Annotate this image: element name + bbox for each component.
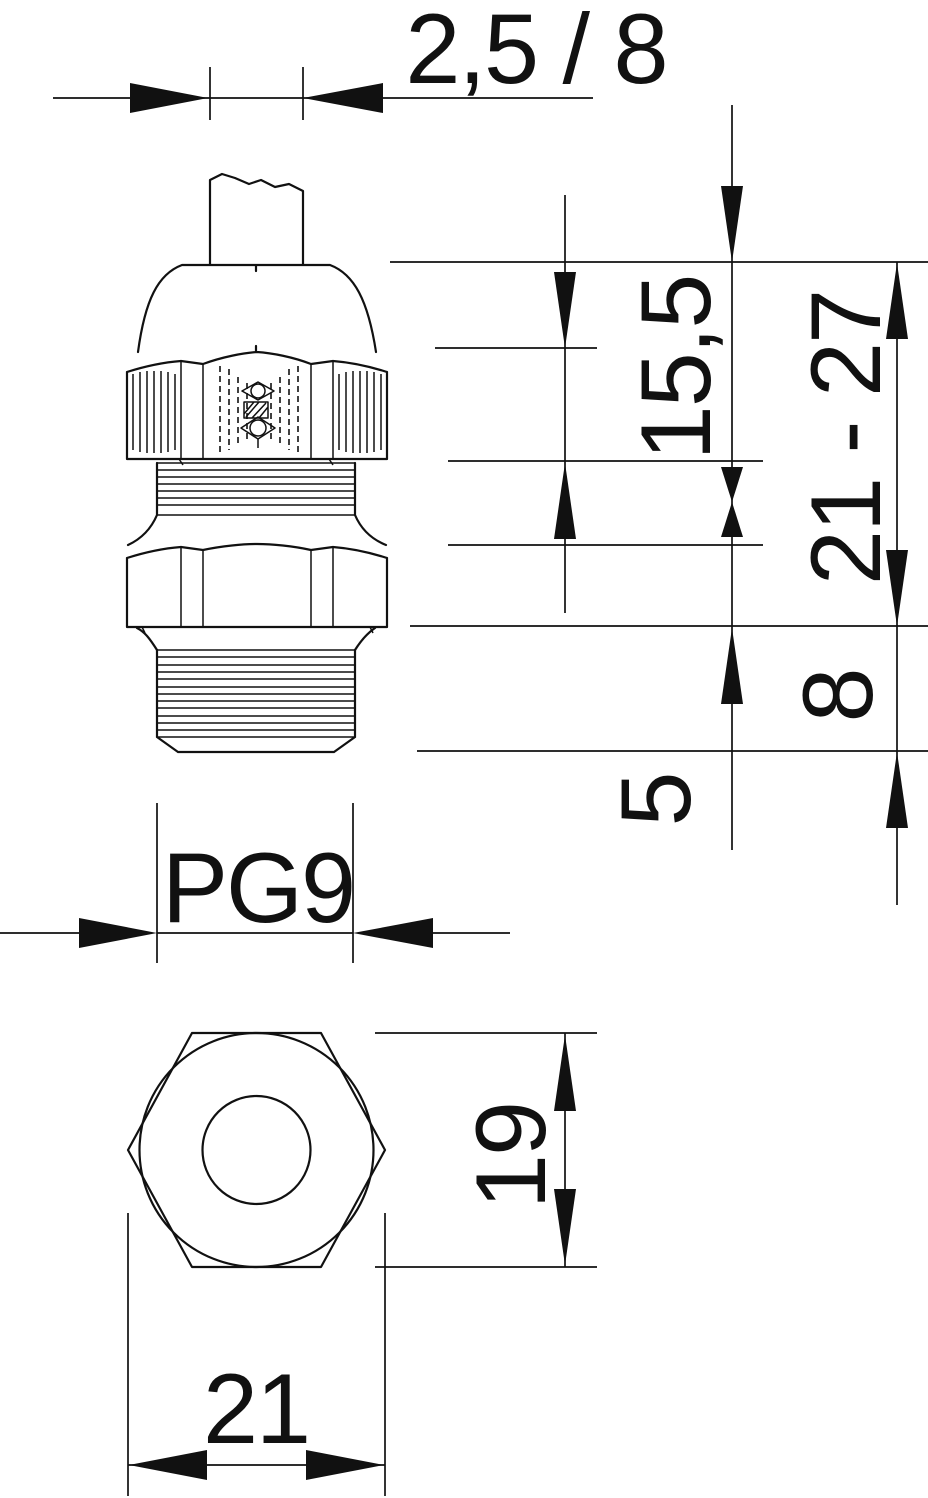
thread-section <box>157 650 355 752</box>
knurl-left <box>133 371 175 453</box>
overall-height-range-label: 21 - 27 <box>790 291 901 585</box>
body-circle <box>140 1033 374 1267</box>
cable-stub <box>210 174 303 264</box>
hex-nut <box>127 346 387 465</box>
clamping-arrow-left <box>130 83 208 113</box>
arrow-down-dome-top <box>721 186 743 262</box>
flange-hex <box>127 544 387 650</box>
thread-arrow-left <box>79 918 157 948</box>
rib-section-edges <box>128 463 386 545</box>
thread-protrusion-label: 5 <box>600 773 711 826</box>
dome-cap <box>138 265 376 352</box>
dimension-lines <box>0 67 928 1496</box>
flange-outline <box>127 544 387 627</box>
upper-height-label: 15,5 <box>620 276 731 461</box>
arrow-hourglass-lower <box>721 502 743 537</box>
certification-marks <box>241 382 275 448</box>
flats-arrow-up <box>554 1035 576 1111</box>
thread-size-label: PG9 <box>162 832 354 943</box>
drawing-canvas: 2,5 / 8 15,5 21 - 27 8 5 PG9 19 21 <box>0 0 928 1498</box>
flange-facet-lines <box>142 547 373 633</box>
mark-circle-top <box>251 384 265 398</box>
corners-arrow-right <box>306 1450 384 1480</box>
clamping-range-label: 2,5 / 8 <box>405 0 666 104</box>
front-view <box>127 174 387 752</box>
flange-neck <box>137 628 375 650</box>
sealing-ribs <box>128 463 386 545</box>
clamping-arrow-right <box>303 83 383 113</box>
bottom-view <box>128 1033 385 1267</box>
arrow-down-nut-top <box>554 272 576 348</box>
rib-lines <box>157 463 355 515</box>
arrow-up-thread-bottom <box>886 752 908 828</box>
hexagon-outline <box>128 1033 385 1267</box>
across-flats-label: 19 <box>455 1103 566 1209</box>
thread-length-label: 8 <box>782 669 893 722</box>
bore-circle <box>203 1096 311 1204</box>
thread-arrow-right <box>353 918 433 948</box>
arrow-up-flange-bottom <box>721 628 743 704</box>
technical-drawing: 2,5 / 8 15,5 21 - 27 8 5 PG9 19 21 <box>0 0 928 1498</box>
across-corners-label: 21 <box>203 1353 309 1464</box>
corners-arrow-left <box>129 1450 207 1480</box>
thread-lines <box>157 650 355 737</box>
knurl-right <box>339 371 381 453</box>
labels: 2,5 / 8 15,5 21 - 27 8 5 PG9 19 21 <box>162 0 901 1464</box>
arrow-up-nut-bottom <box>554 463 576 539</box>
arrow-hourglass-upper <box>721 467 743 502</box>
mark-circle-bottom <box>250 420 266 436</box>
